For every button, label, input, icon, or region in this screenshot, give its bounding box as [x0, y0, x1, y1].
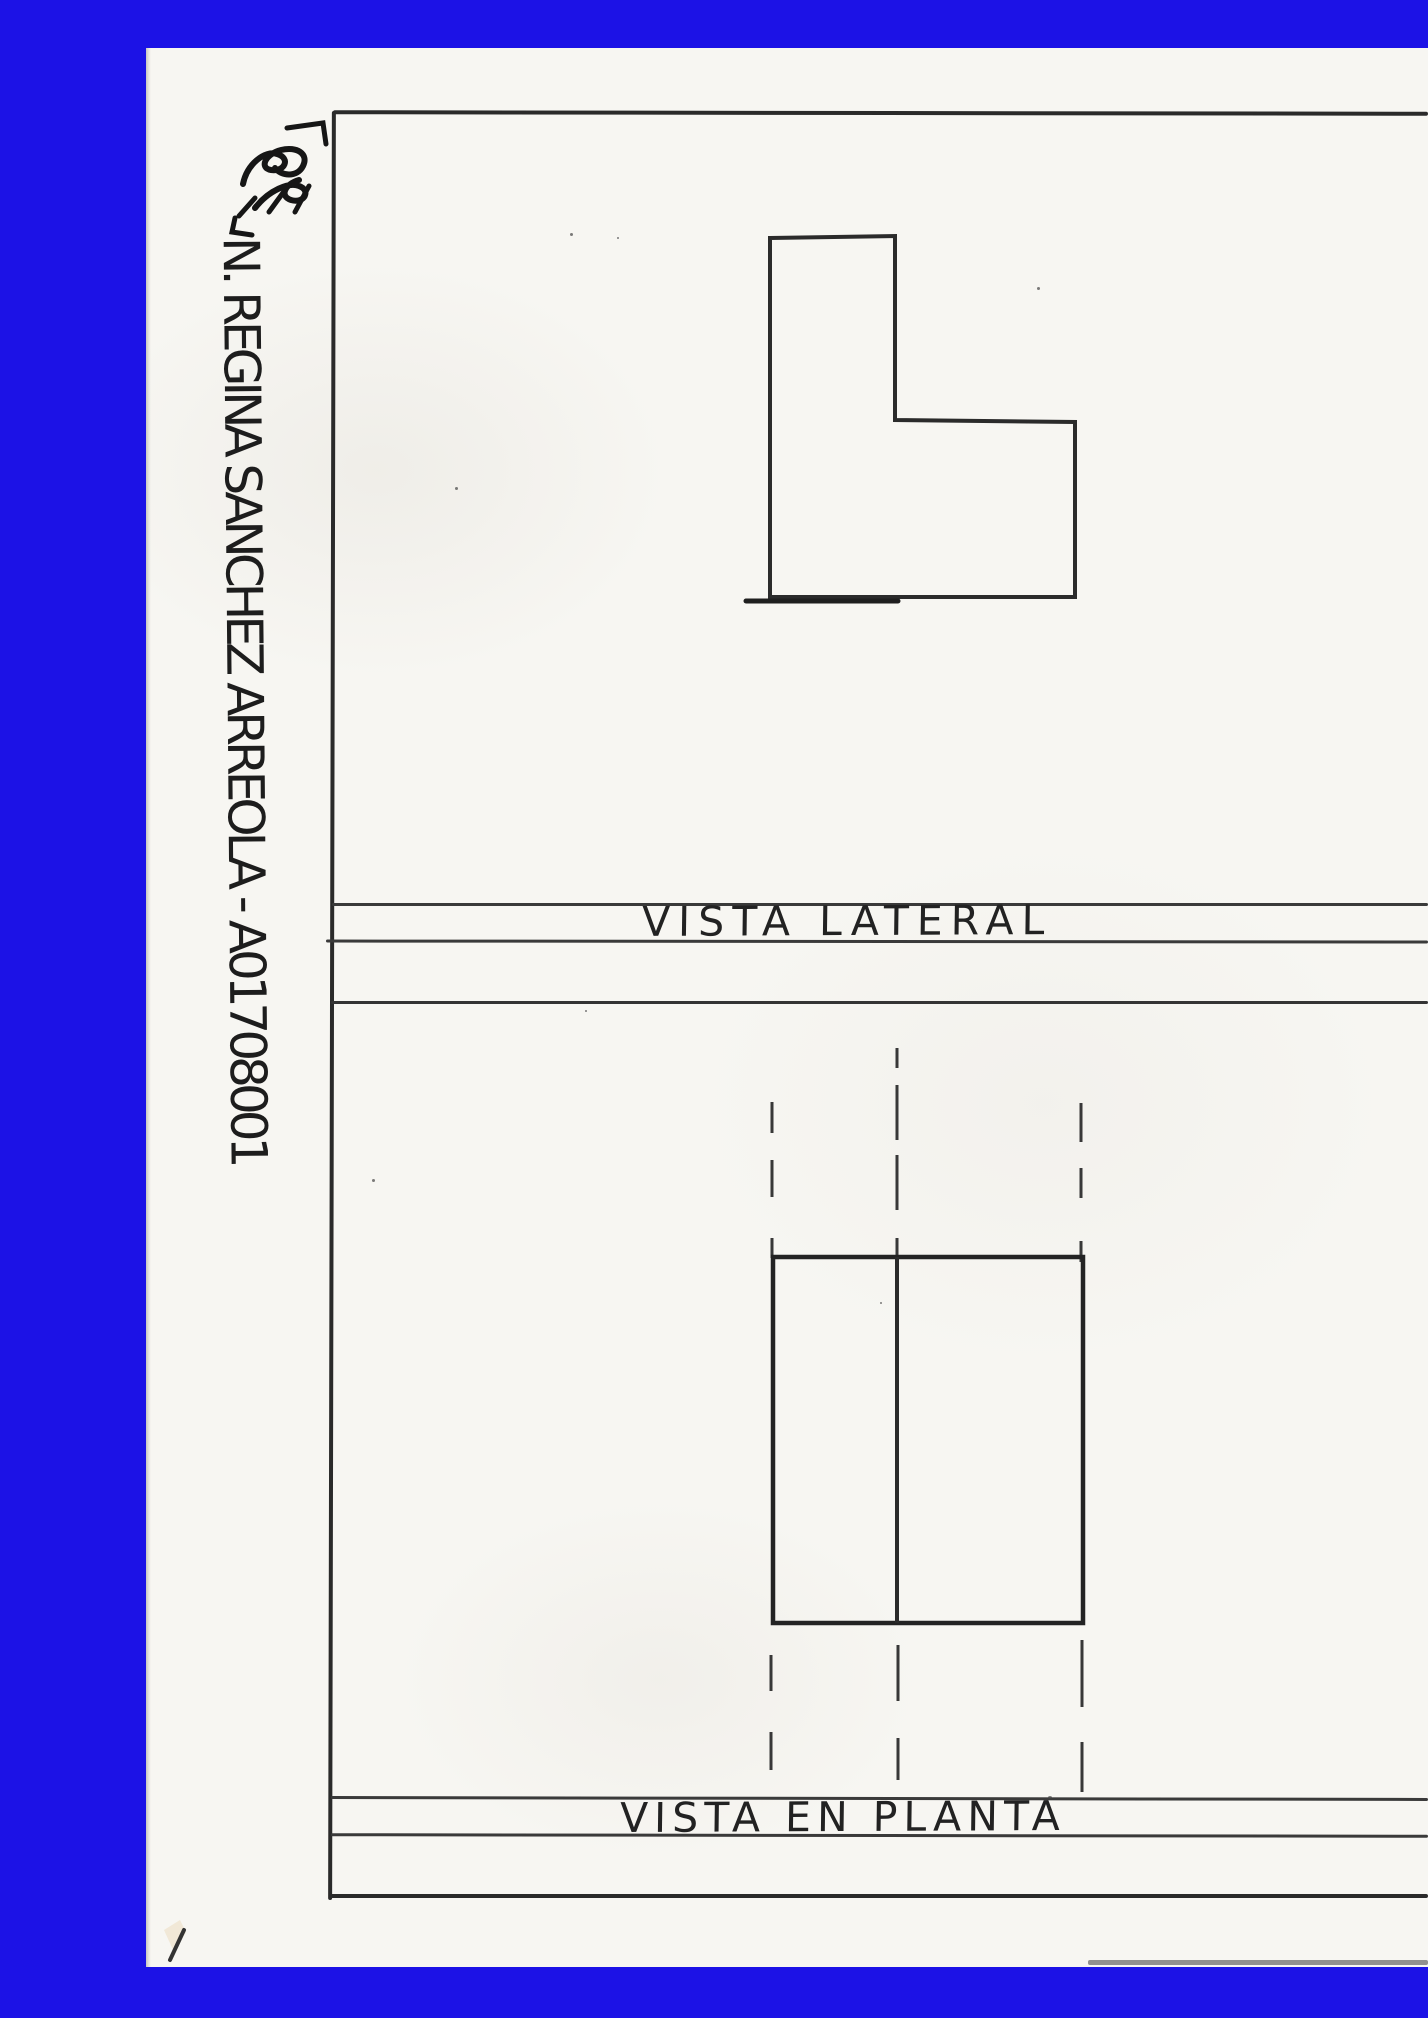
pen-mark: [160, 1918, 200, 1968]
scribble-mark: [225, 120, 335, 240]
label-vista-lateral: VISTA LATERAL: [642, 898, 1053, 944]
scan-speck: [617, 237, 619, 239]
scanned-drawing-sheet: { "margin": { "student_name": "N. REGINA…: [0, 0, 1428, 2018]
scan-speck: [1048, 1796, 1052, 1799]
label-vista-en-planta: VISTA EN PLANTA: [620, 1794, 1066, 1840]
frame-bottom-border: [329, 1894, 1428, 1898]
scan-speck: [1037, 287, 1040, 290]
page-edge-shadow-bottom: [1088, 1960, 1428, 1965]
scan-speck: [455, 487, 458, 490]
section-divider-line: [331, 1001, 1428, 1004]
lateral-view-shape: [740, 220, 1100, 620]
scan-speck: [880, 1302, 882, 1304]
page-edge-shadow-left: [146, 48, 151, 1967]
scan-speck: [372, 1179, 375, 1182]
plan-view-shape: [750, 1240, 1100, 1640]
scan-speck: [570, 233, 573, 236]
scan-speck: [585, 1010, 587, 1012]
